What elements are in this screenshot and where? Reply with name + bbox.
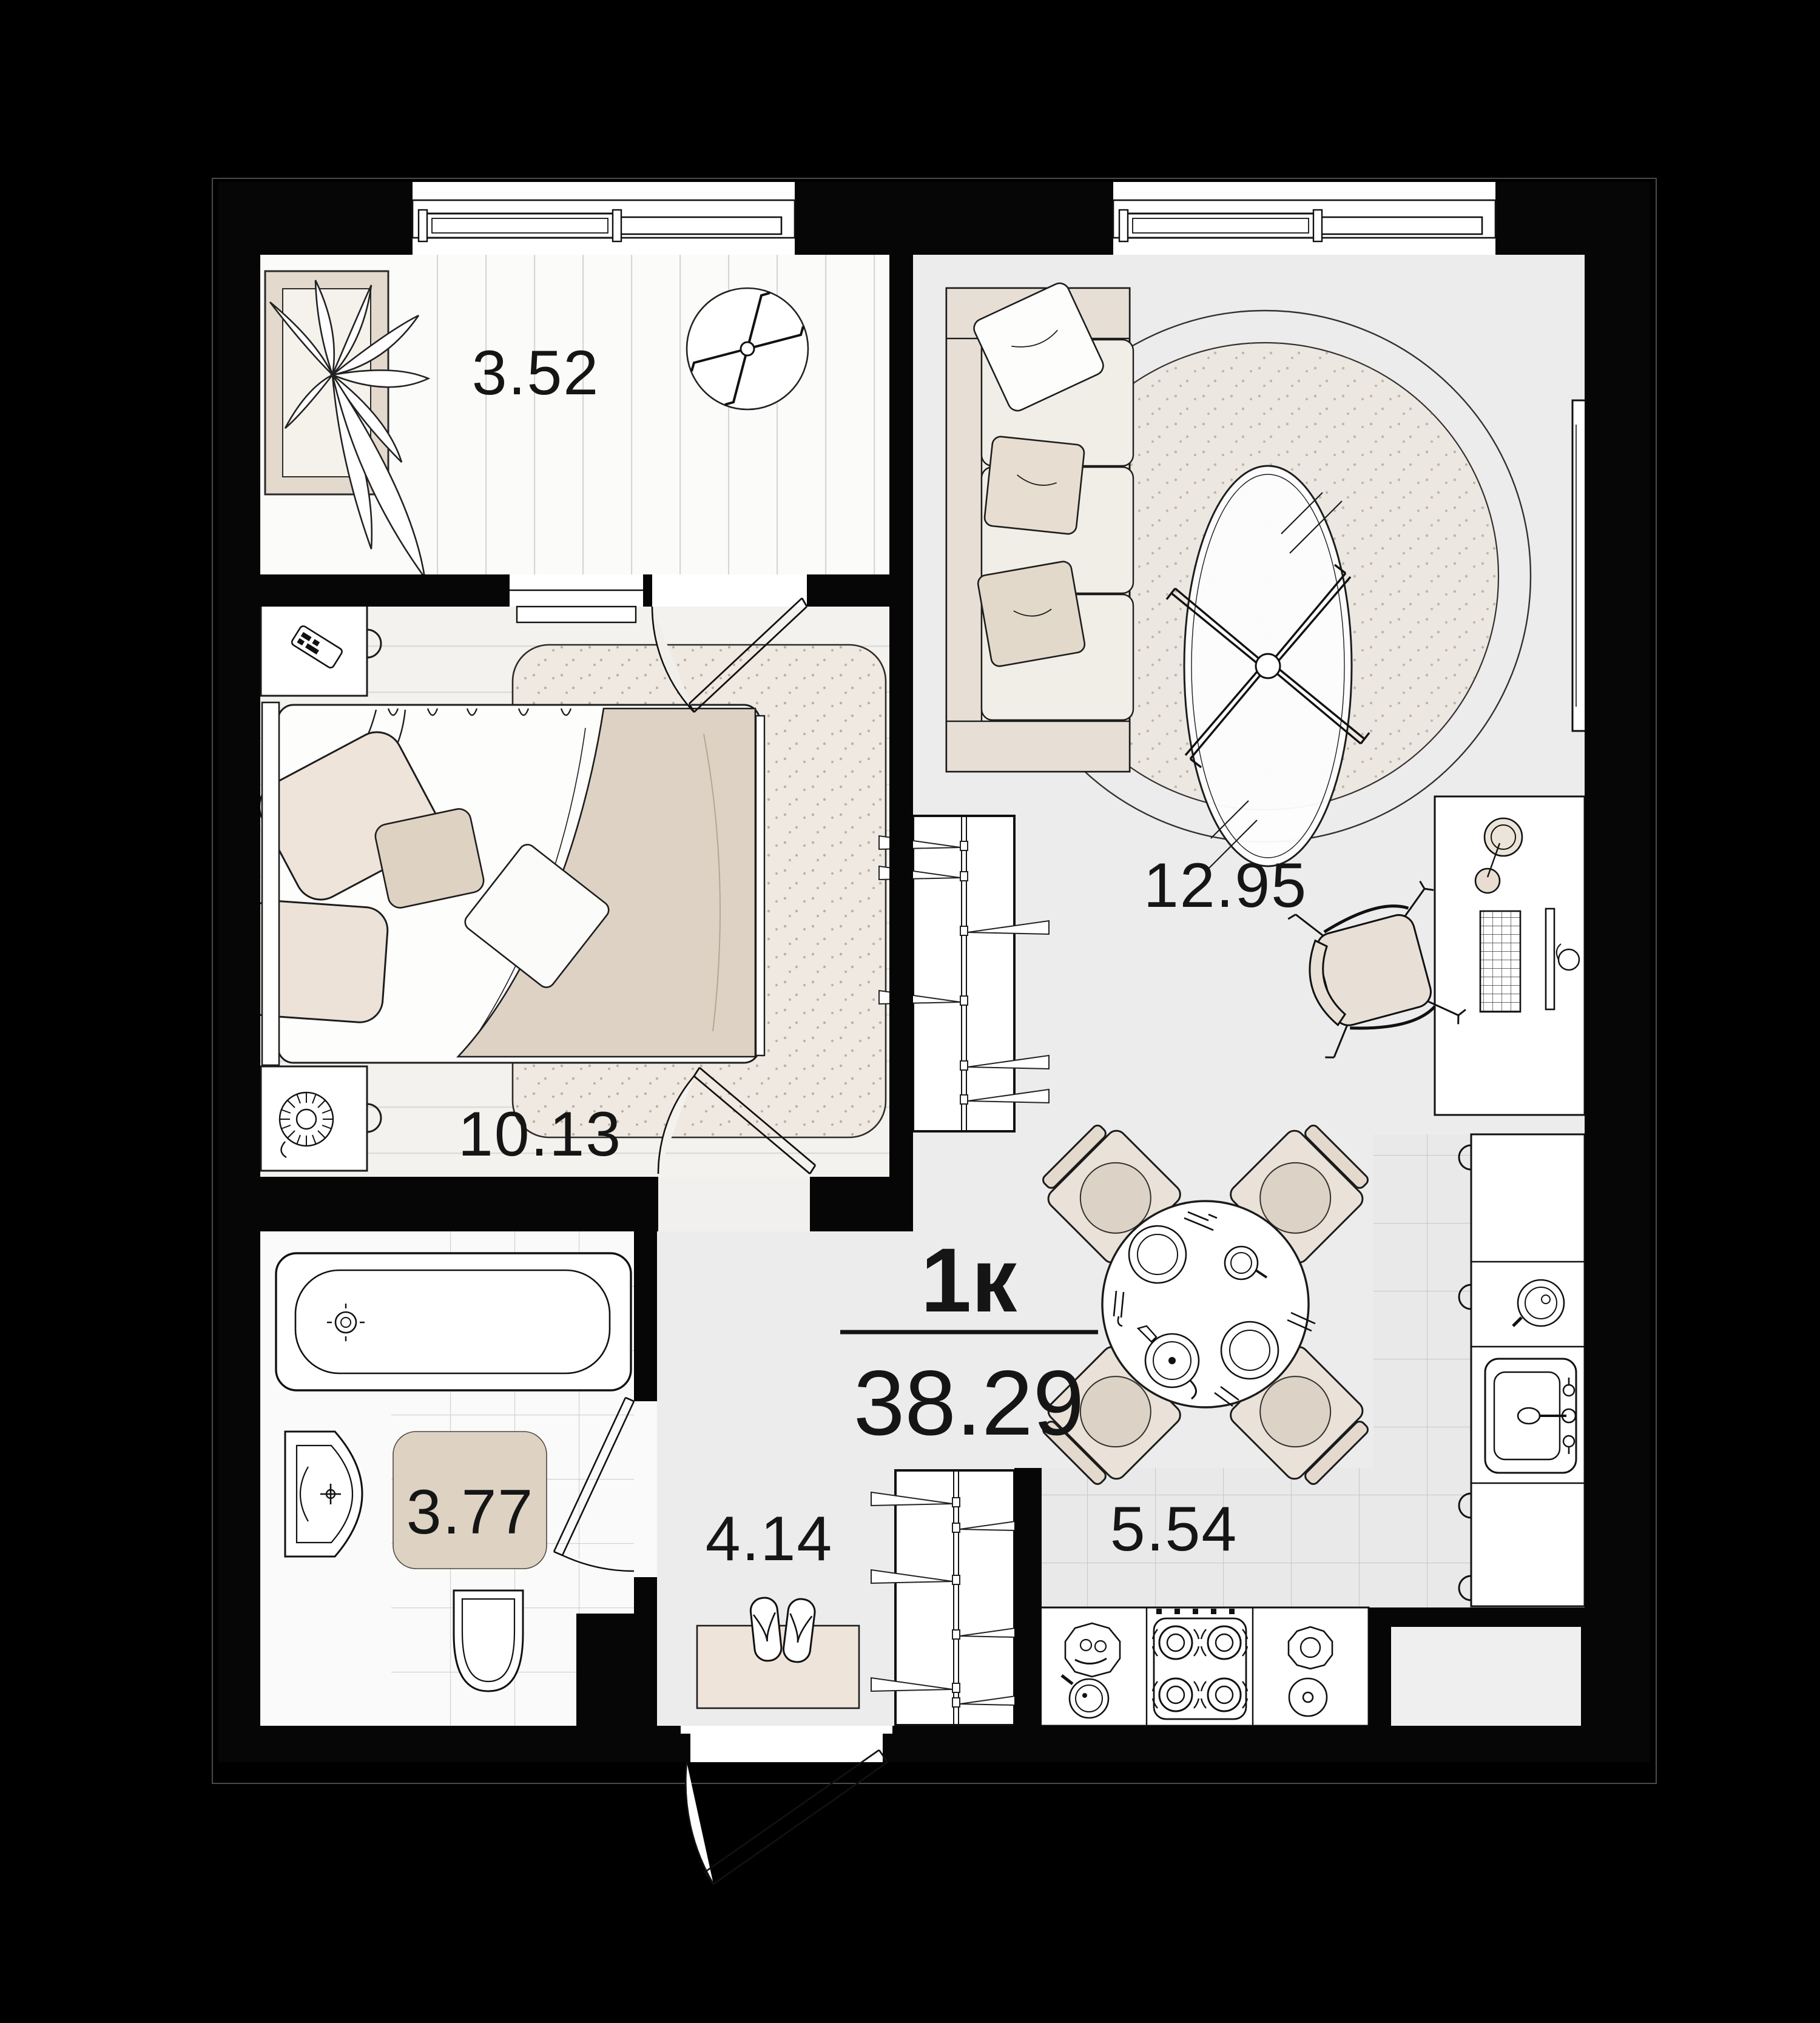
- nightstand: [261, 1066, 381, 1171]
- plate-icon: [1129, 1226, 1186, 1283]
- bowl-icon: [1289, 1627, 1332, 1669]
- desk: [1435, 796, 1585, 1115]
- bed: [242, 702, 764, 1065]
- nightstand: [261, 591, 381, 696]
- tv-icon: [1572, 400, 1586, 731]
- pillow: [984, 436, 1085, 534]
- floor-plan-page: 3.52 10.13 12.95 3.77 4.14 5.54 1к 38.29: [0, 0, 1820, 2023]
- dining-table: [1102, 1201, 1309, 1407]
- keyboard-icon: [1480, 911, 1520, 1012]
- window: [1113, 182, 1495, 255]
- floor-plan: 3.52 10.13 12.95 3.77 4.14 5.54 1к 38.29: [0, 0, 1820, 2023]
- kitchen-area-label: 5.54: [1110, 1494, 1238, 1564]
- pillow: [977, 560, 1086, 668]
- stove-burners-icon: [1153, 1609, 1247, 1719]
- ceiling-fan-icon: [687, 288, 808, 409]
- hallway-area-label: 4.14: [706, 1504, 833, 1574]
- footboard: [756, 716, 764, 1055]
- balcony-window: [510, 574, 643, 622]
- bowl-icon: [1065, 1623, 1120, 1677]
- kitchen-counter-right: [1459, 1134, 1585, 1606]
- bathroom-area-label: 3.77: [406, 1477, 534, 1547]
- toilet-icon: [454, 1590, 523, 1691]
- window: [413, 182, 795, 255]
- total-area-label: 38.29: [854, 1351, 1084, 1455]
- bathtub: [276, 1253, 631, 1390]
- plate-icon: [1289, 1678, 1327, 1716]
- monitor-icon: [1546, 909, 1554, 1009]
- plate-icon: [1221, 1322, 1278, 1379]
- balcony-area-label: 3.52: [472, 338, 599, 408]
- kitchen-counter-bottom: [1037, 1607, 1369, 1726]
- vent-shaft: [1391, 1627, 1581, 1726]
- kitchen-sink-icon: [1485, 1359, 1576, 1473]
- apartment-type-label: 1к: [921, 1229, 1017, 1331]
- headboard: [262, 702, 279, 1065]
- living-area-label: 12.95: [1144, 850, 1307, 921]
- bedroom-area-label: 10.13: [458, 1099, 622, 1170]
- sofa: [946, 280, 1133, 772]
